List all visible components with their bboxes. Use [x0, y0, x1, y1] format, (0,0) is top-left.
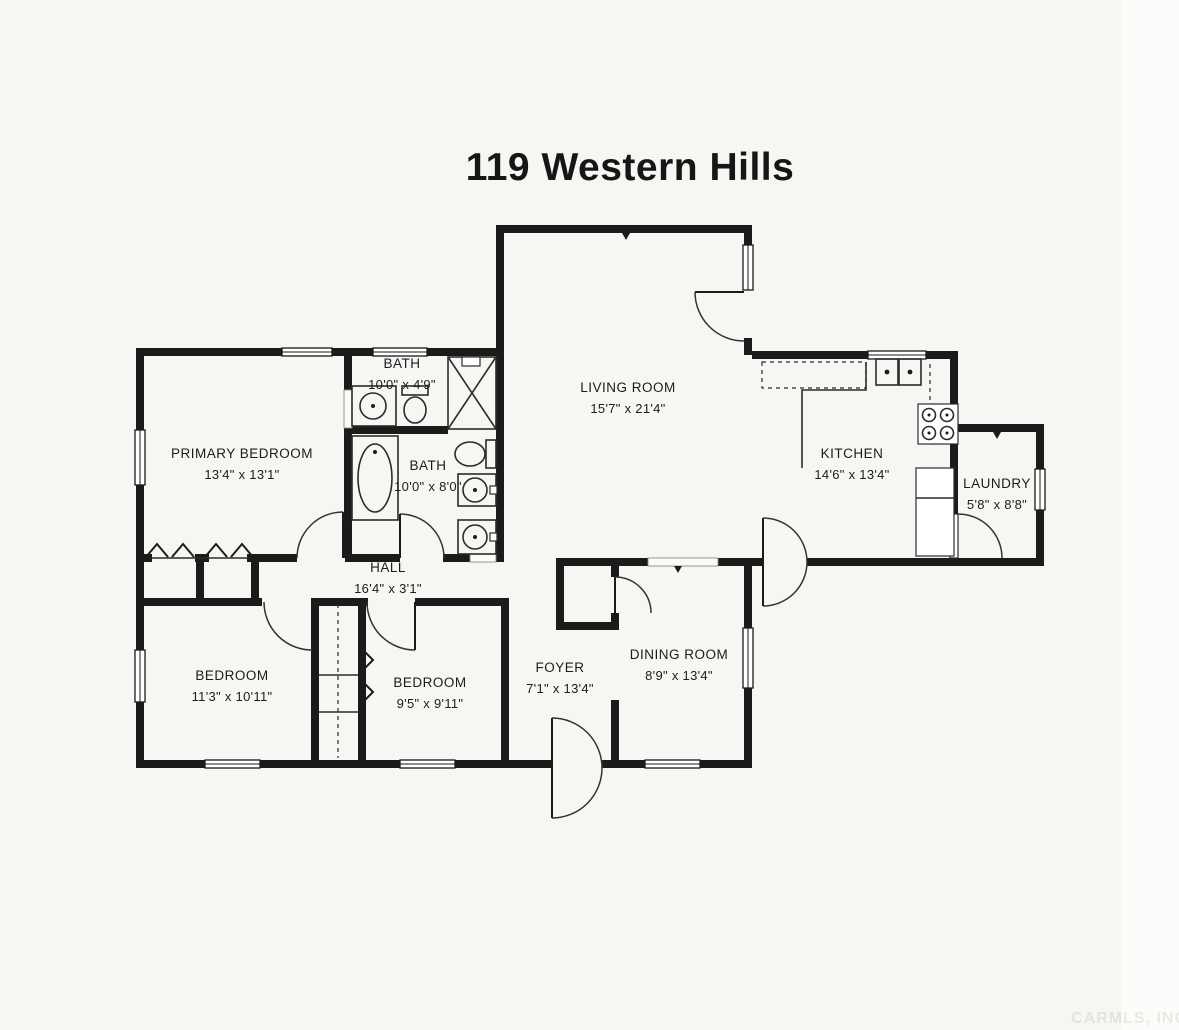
window [135, 650, 145, 702]
floor-plan: BATH10'0" x 4'9"PRIMARY BEDROOM13'4" x 1… [0, 0, 1179, 1030]
cased-opening [344, 390, 352, 428]
room-name: BEDROOM [195, 668, 268, 683]
window [205, 760, 260, 768]
room-name: KITCHEN [821, 446, 884, 461]
window [135, 430, 145, 485]
room-dims: 5'8" x 8'8" [967, 497, 1027, 512]
room-dims: 15'7" x 21'4" [590, 401, 665, 416]
door-foyer-closet [615, 577, 651, 613]
toilet [455, 440, 496, 468]
room-dims: 13'4" x 13'1" [204, 467, 279, 482]
room-dims: 11'3" x 10'11" [192, 689, 273, 704]
room-dims: 7'1" x 13'4" [526, 681, 594, 696]
cased-opening [648, 558, 718, 566]
refrigerator [916, 468, 954, 556]
vanity-sink [458, 474, 497, 506]
door-laundry [950, 514, 1002, 558]
window [743, 245, 753, 290]
door-bath [400, 514, 444, 558]
vanity-sink [352, 386, 396, 426]
cased-opening [470, 554, 496, 562]
bathtub [352, 436, 398, 520]
room-name: HALL [370, 560, 406, 575]
room-dims: 10'0" x 4'9" [368, 377, 436, 392]
room-name: LAUNDRY [963, 476, 1031, 491]
room-name: DINING ROOM [630, 647, 729, 662]
room-dims: 14'6" x 13'4" [814, 467, 889, 482]
watermark: CARMLS, INC [1071, 1010, 1179, 1028]
room-dims: 10'0" x 8'0" [394, 479, 462, 494]
range [918, 404, 958, 444]
window [1035, 469, 1045, 510]
entry-door-living [695, 292, 744, 341]
window [282, 348, 332, 356]
shower [448, 357, 496, 429]
door-primary-bedroom [297, 512, 343, 558]
room-name: BATH [409, 458, 446, 473]
bifold-caret [172, 544, 194, 557]
floorplan-page: 119 Western Hills [0, 0, 1179, 1030]
vanity-sink [458, 520, 497, 554]
swing-door-kitchen [763, 518, 807, 606]
window [400, 760, 455, 768]
window [743, 628, 753, 688]
kitchen-sink [876, 359, 921, 385]
room-name: PRIMARY BEDROOM [171, 446, 313, 461]
closets [146, 544, 373, 758]
room-name: BATH [383, 356, 420, 371]
front-door [552, 718, 602, 818]
door-bedroom-right [367, 602, 415, 650]
room-name: LIVING ROOM [580, 380, 676, 395]
room-dims: 9'5" x 9'11" [397, 696, 464, 711]
room-dims: 16'4" x 3'1" [354, 581, 422, 596]
room-name: BEDROOM [393, 675, 466, 690]
window [645, 760, 700, 768]
room-dims: 8'9" x 13'4" [645, 668, 713, 683]
room-name: FOYER [535, 660, 584, 675]
window [868, 351, 926, 359]
door-bedroom-left [264, 602, 312, 650]
room-labels: BATH10'0" x 4'9"PRIMARY BEDROOM13'4" x 1… [171, 356, 1031, 711]
window [373, 348, 427, 356]
